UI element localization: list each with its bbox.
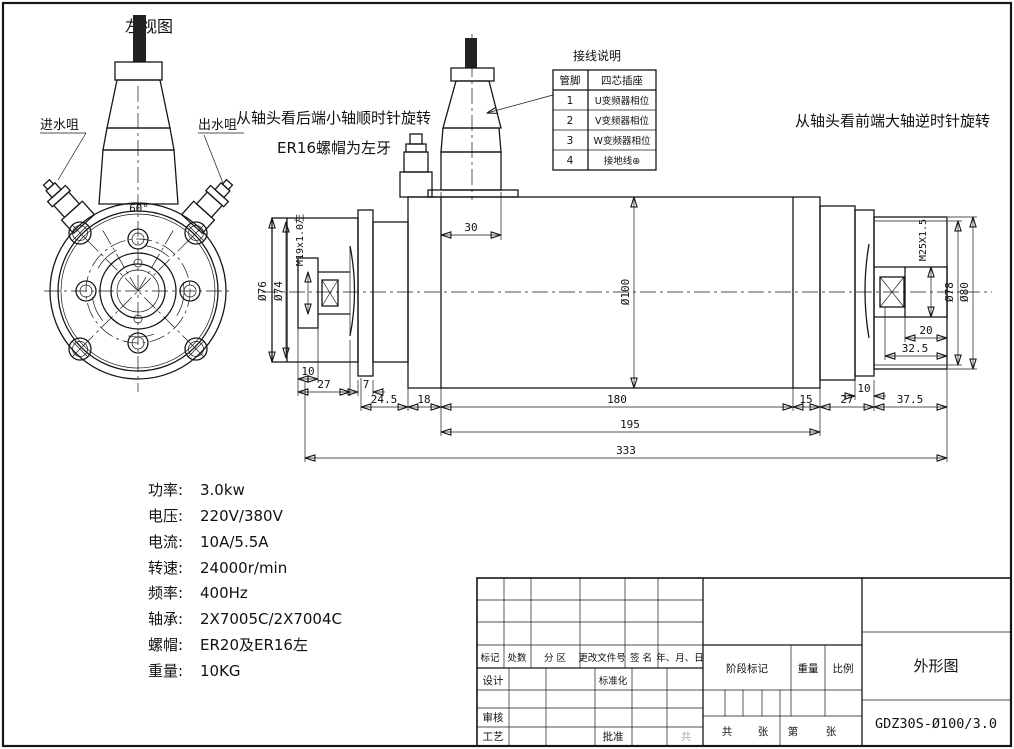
left-view: 左视图 60° — [36, 15, 244, 392]
spec-power: 功率:3.0kw — [148, 481, 245, 499]
wiring-title: 接线说明 — [573, 48, 621, 63]
tb-rev-docno: 更改文件号 — [578, 652, 626, 664]
dim-15: 15 — [799, 393, 812, 406]
spec-nut: 螺帽:ER20及ER16左 — [148, 636, 308, 654]
tb-design: 设计 — [483, 674, 504, 687]
title-block: 标记 处数 分 区 更改文件号 签 名 年、月、日 设计 标准化 审核 工艺 批… — [477, 578, 1011, 746]
dim-dia80: Ø80 — [958, 282, 971, 302]
drawing-canvas: 左视图 60° — [0, 0, 1014, 749]
tb-scale: 比例 — [833, 662, 854, 675]
tb-process: 工艺 — [483, 731, 504, 743]
side-nozzle — [400, 134, 432, 197]
tb-sheet-unit2: 张 — [826, 726, 837, 738]
dim-20: 20 — [919, 324, 932, 337]
tb-rev-date: 年、月、日 — [656, 652, 704, 664]
rear-nut-note: ER16螺帽为左牙 — [277, 139, 391, 157]
dim-27-front: 27 — [840, 393, 853, 406]
dim-195: 195 — [620, 418, 640, 431]
rear-shaft-assembly — [272, 210, 408, 376]
dim-18: 18 — [417, 393, 430, 406]
tb-sheet-unit1: 张 — [758, 726, 769, 738]
dimensions: 30 Ø100 Ø76 Ø74 M19x1.0左 10 27 7 — [256, 192, 977, 462]
dim-180: 180 — [607, 393, 627, 406]
drawing-sheet: 左视图 60° — [0, 0, 1014, 749]
spec-frequency: 频率:400Hz — [148, 584, 248, 602]
wiring-table: 接线说明 管脚 四芯插座 1 U变频器相位 2 V变频器相位 3 W变频器相位 … — [487, 48, 656, 170]
spec-bearings: 轴承:2X7005C/2X7004C — [148, 610, 342, 628]
inlet-label: 进水咀 — [40, 118, 79, 133]
tb-rev-mark: 标记 — [480, 652, 500, 664]
pin-4-desc: 接地线⊕ — [604, 155, 640, 167]
pin-3-desc: W变频器相位 — [594, 135, 651, 147]
left-view-label: 左视图 — [125, 17, 173, 36]
dim-dia78: Ø78 — [943, 282, 956, 302]
dim-7: 7 — [363, 378, 370, 391]
pin-2: 2 — [567, 115, 574, 127]
dim-m25: M25X1.5 — [918, 219, 929, 261]
rear-rotation-note: 从轴头看后端小轴顺时针旋转 — [236, 109, 431, 127]
dim-27-rear: 27 — [317, 378, 330, 391]
front-flange-block — [820, 206, 855, 380]
tb-sheet-no-label: 第 — [788, 725, 799, 738]
tb-stage-mark: 阶段标记 — [726, 662, 768, 675]
rear-flange-plate — [358, 210, 373, 376]
tb-rev-sign: 签 名 — [630, 652, 652, 664]
tb-rev-count: 处数 — [507, 652, 527, 664]
tb-check: 审核 — [483, 711, 504, 724]
spec-speed: 转速:24000r/min — [148, 559, 287, 577]
spec-voltage: 电压:220V/380V — [148, 507, 284, 525]
tb-model: GDZ30S-Ø100/3.0 — [875, 716, 997, 732]
pin-1: 1 — [567, 95, 574, 107]
dim-32-5: 32.5 — [902, 342, 929, 355]
dim-dia74: Ø74 — [272, 281, 285, 301]
spec-weight: 重量:10KG — [148, 662, 241, 680]
tb-approve: 批准 — [603, 730, 624, 743]
front-rotation-note: 从轴头看前端大轴逆时针旋转 — [795, 112, 990, 130]
dim-30: 30 — [464, 221, 477, 234]
dim-m19: M19x1.0左 — [293, 214, 306, 266]
tb-weight: 重量 — [798, 662, 819, 675]
dim-dia76: Ø76 — [256, 281, 269, 301]
dim-24-5: 24.5 — [371, 393, 398, 406]
connector-side-view — [428, 34, 518, 200]
wiring-leader-arrow — [487, 95, 553, 113]
dim-333: 333 — [616, 444, 636, 457]
wiring-col-pin: 管脚 — [560, 74, 581, 87]
tb-drawing-title: 外形图 — [913, 657, 958, 675]
cable — [133, 15, 146, 62]
connector-left-view — [99, 15, 178, 204]
side-view — [262, 34, 992, 388]
wiring-col-socket: 四芯插座 — [601, 74, 643, 87]
dim-dia100: Ø100 — [619, 279, 632, 306]
dim-10-front: 10 — [857, 382, 870, 395]
tb-standardization: 标准化 — [599, 675, 628, 687]
outlet-label: 出水咀 — [198, 118, 237, 133]
spec-current: 电流:10A/5.5A — [148, 533, 269, 551]
tb-rev-zone: 分 区 — [544, 653, 567, 664]
spec-list: 功率:3.0kw 电压:220V/380V 电流:10A/5.5A 转速:240… — [148, 481, 342, 680]
tb-ghost-text: 共 — [681, 731, 692, 743]
pin-3: 3 — [567, 135, 574, 147]
cable — [465, 38, 477, 68]
pin-4: 4 — [567, 155, 574, 167]
dim-37-5: 37.5 — [897, 393, 924, 406]
dim-10-rear: 10 — [301, 365, 314, 378]
tb-sheet-total-label: 共 — [722, 726, 733, 738]
pin-2-desc: V变频器相位 — [595, 115, 649, 127]
pin-1-desc: U变频器相位 — [595, 95, 650, 107]
